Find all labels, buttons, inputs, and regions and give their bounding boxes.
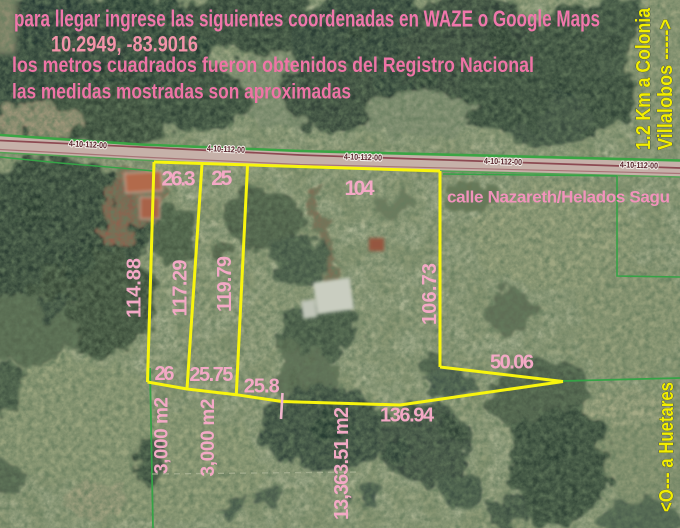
svg-text:119.79: 119.79	[214, 256, 236, 312]
svg-text:calle Nazareth/Helados Sagu: calle Nazareth/Helados Sagu	[447, 188, 670, 207]
svg-text:3,000 m2: 3,000 m2	[198, 399, 219, 477]
svg-text:26.3: 26.3	[162, 168, 196, 191]
svg-text:3,000 m2: 3,000 m2	[152, 397, 173, 474]
svg-text:para llegar ingrese las siguie: para llegar ingrese las siguientes coord…	[14, 6, 600, 32]
svg-text:25.75: 25.75	[189, 364, 233, 386]
svg-text:104: 104	[345, 177, 375, 200]
svg-text:25.8: 25.8	[244, 376, 280, 398]
svg-text:25: 25	[211, 167, 232, 190]
svg-text:Villalobos ----->: Villalobos ----->	[655, 19, 677, 150]
svg-text:4-10-112-00: 4-10-112-00	[620, 159, 659, 170]
svg-text:136.94: 136.94	[380, 405, 435, 427]
svg-text:50.06: 50.06	[490, 352, 534, 374]
svg-text:4-10-112-00: 4-10-112-00	[69, 138, 108, 150]
svg-text:4-10-112-00: 4-10-112-00	[207, 143, 246, 155]
svg-text:<O--- a Huetares: <O--- a Huetares	[656, 382, 678, 512]
svg-text:las medidas mostradas son apro: las medidas mostradas son aproximadas	[12, 81, 351, 104]
svg-text:los metros cuadrados fueron ob: los metros cuadrados fueron obtenidos de…	[12, 54, 534, 77]
svg-text:117.29: 117.29	[170, 260, 192, 317]
svg-text:26: 26	[155, 363, 175, 385]
svg-text:114.88: 114.88	[124, 258, 146, 318]
svg-text:106.73: 106.73	[419, 263, 441, 325]
svg-text:1.2 Km a Colonia: 1.2 Km a Colonia	[633, 7, 655, 150]
svg-text:10.2949, -83.9016: 10.2949, -83.9016	[51, 32, 198, 57]
svg-text:4-10-112-00: 4-10-112-00	[484, 156, 523, 167]
svg-text:4-10-112-00: 4-10-112-00	[344, 151, 383, 162]
svg-text:13,363.51 m2: 13,363.51 m2	[331, 407, 353, 520]
